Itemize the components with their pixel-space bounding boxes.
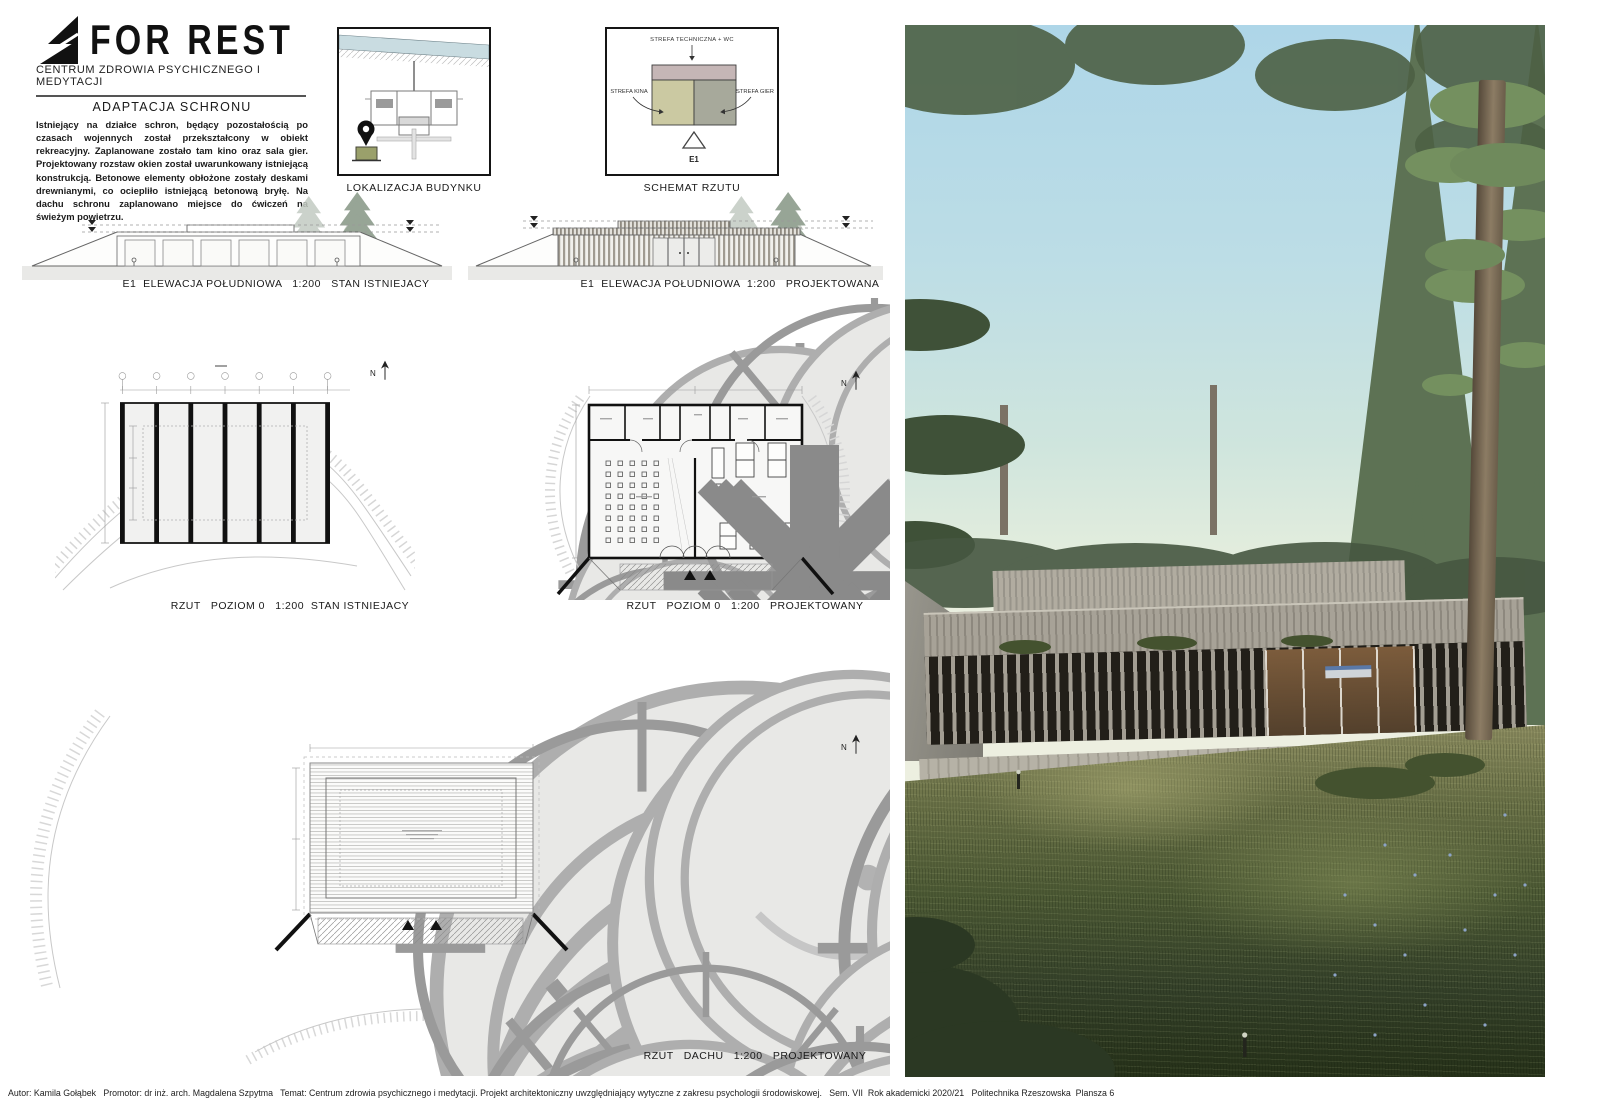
elevation-existing-drawing — [22, 192, 452, 282]
render-foreground — [905, 25, 1545, 1077]
svg-text:N: N — [370, 369, 376, 378]
meadow-flowers — [1333, 813, 1526, 1036]
elevation-existing-label: E1 ELEWACJA POŁUDNIOWA 1:200 STAN ISTNIE… — [61, 278, 491, 290]
zone-left-label: STREFA KINA — [610, 89, 648, 95]
zone-right-label: STREFA GIER — [736, 89, 774, 95]
logo-title: FOR REST — [90, 20, 294, 61]
logo-subtitle: CENTRUM ZDROWIA PSYCHICZNEGO I MEDYTACJI — [36, 64, 306, 97]
svg-text:N: N — [841, 743, 847, 752]
location-diagram: LOKALIZACJA BUDYNKU — [337, 27, 491, 194]
plan-existing-label: RZUT POZIOM 0 1:200 STAN ISTNIEJACY — [110, 600, 470, 612]
zone-right — [694, 80, 736, 125]
garden-lamp-icon — [1016, 770, 1247, 1057]
logo-block: FOR REST — [36, 14, 294, 66]
render-photo — [905, 25, 1545, 1077]
presentation-board: FOR REST CENTRUM ZDROWIA PSYCHICZNEGO I … — [0, 0, 1600, 1120]
zone-top-label: STREFA TECHNICZNA + WC — [650, 37, 734, 43]
forrest-logo-icon — [36, 14, 82, 66]
credit-line: Autor: Kamila Gołąbek Promotor: dr inż. … — [8, 1088, 1592, 1098]
north-arrow-icon: N — [370, 361, 389, 380]
map-pin-icon — [358, 121, 375, 147]
zone-left — [652, 80, 694, 125]
roof-plan-drawing: N — [10, 628, 890, 1076]
svg-text:N: N — [841, 379, 847, 388]
plan-schematic: STREFA TECHNICZNA + WC STREFA KINA STREF… — [605, 27, 779, 194]
schematic-drawing: STREFA TECHNICZNA + WC STREFA KINA STREF… — [607, 29, 777, 174]
elevation-proposed-drawing — [468, 192, 883, 282]
elevation-proposed-label: E1 ELEWACJA POŁUDNIOWA 1:200 PROJEKTOWAN… — [515, 278, 945, 290]
plan-proposed-drawing: N — [440, 298, 890, 600]
plan-proposed-label: RZUT POZIOM 0 1:200 PROJEKTOWANY — [560, 600, 930, 612]
roof-plan-label: RZUT DACHU 1:200 PROJEKTOWANY — [600, 1050, 910, 1062]
zone-top — [652, 65, 736, 80]
intro-heading: ADAPTACJA SCHRONU — [36, 100, 308, 114]
location-map — [339, 29, 489, 174]
plan-existing-drawing: N — [55, 338, 415, 593]
elevation-marker: E1 — [689, 155, 699, 164]
